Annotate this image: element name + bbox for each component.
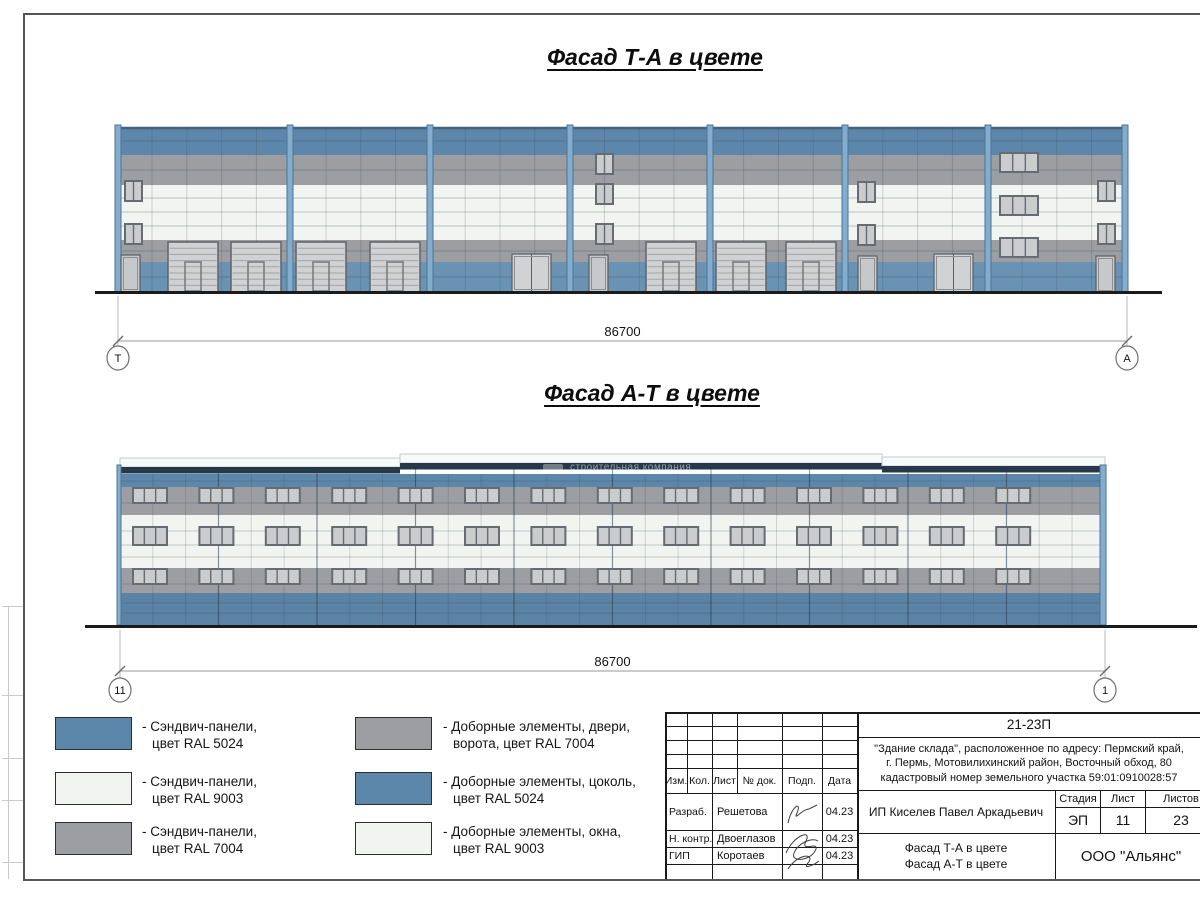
stamp-sheets-value: 23 [1146,807,1200,833]
stamp-date: 04.23 [822,830,857,847]
dimension-value: 86700 [604,324,640,339]
sheet-border-left [23,13,25,881]
axis-marker-left: 11 [114,685,125,697]
sheet-border-top [23,13,1200,15]
axis-marker-right: 1 [1102,685,1108,697]
margin-line [2,862,23,863]
axis-marker-right: А [1123,353,1131,365]
stamp-sheet-label: Лист [1101,790,1145,807]
axis-marker-left: Т [115,353,122,365]
legend-swatch [355,822,432,855]
sheet-border-bottom [23,879,1200,881]
margin-line [2,695,23,696]
drawing-sheet: Фасад Т-А в цвете Фасад А-Т в цвете 8670… [0,0,1200,900]
stamp-col-kol: Кол. [687,768,712,793]
watermark-logo [543,464,563,473]
margin-line [2,800,23,801]
stamp-date: 04.23 [822,795,857,828]
stamp-stage-label: Стадия [1056,790,1100,807]
stamp-sheet-title: Фасад Т-А в цвете Фасад А-Т в цвете [858,834,1054,878]
legend-swatch [55,772,132,805]
legend-item-label: - Сэндвич-панели,цвет RAL 7004 [142,823,352,857]
stamp-name: Коротаев [714,847,783,864]
signature [782,793,822,878]
legend-item-label: - Сэндвич-панели,цвет RAL 5024 [142,718,352,752]
legend-item-label: - Доборные элементы, двери,ворота, цвет … [443,718,683,752]
stamp-project-description: "Здание склада", расположенное по адресу… [860,738,1198,789]
legend-swatch [55,822,132,855]
margin-line [2,606,23,607]
stamp-line [665,740,857,741]
legend-swatch [355,772,432,805]
stamp-col-data: Дата [822,768,857,793]
stamp-date: 04.23 [822,847,857,864]
stamp-line [665,793,857,794]
stamp-line [665,864,857,865]
stamp-col-podp: Подп. [782,768,822,793]
stamp-sheets-label: Листов [1146,790,1200,807]
page-title-bottom: Фасад А-Т в цвете [452,380,852,407]
stamp-col-dok: № док. [737,768,782,793]
stamp-company: ООО "Альянс" [1056,834,1200,878]
page-title-top: Фасад Т-А в цвете [455,44,855,71]
stamp-role: ГИП [666,847,715,864]
stamp-line [665,754,857,755]
stamp-col-list: Лист [712,768,737,793]
stamp-stage-value: ЭП [1056,807,1100,833]
stamp-doc-number: 21-23П [858,713,1200,736]
margin-line [2,758,23,759]
stamp-name: Решетова [714,795,783,828]
stamp-client: ИП Киселев Павел Аркадьевич [858,791,1054,832]
watermark-text: строительная компания [570,462,700,473]
legend-swatch [55,717,132,750]
margin-line [8,606,9,879]
stamp-sheet-value: 11 [1101,807,1145,833]
legend-swatch [355,717,432,750]
stamp-col-izm: Изм. [665,768,687,793]
legend-item-label: - Сэндвич-панели,цвет RAL 9003 [142,773,352,807]
stamp-name: Двоеглазов [714,830,783,847]
stamp-line [665,726,857,727]
legend-item-label: - Доборные элементы, цоколь,цвет RAL 502… [443,773,683,807]
stamp-role: Разраб. [666,795,714,828]
legend-item-label: - Доборные элементы, окна,цвет RAL 9003 [443,823,683,857]
stamp-role: Н. контр. [666,830,715,847]
dimension-value: 86700 [594,654,630,669]
